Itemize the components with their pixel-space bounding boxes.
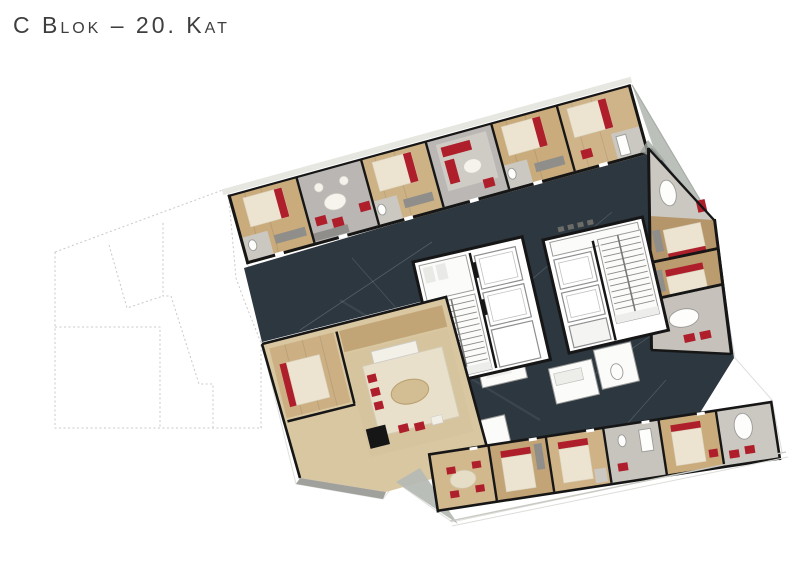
floor-plan-image — [0, 0, 800, 563]
page: C Blok – 20. Kat — [0, 0, 800, 563]
adjacent-block-outline — [55, 188, 262, 428]
